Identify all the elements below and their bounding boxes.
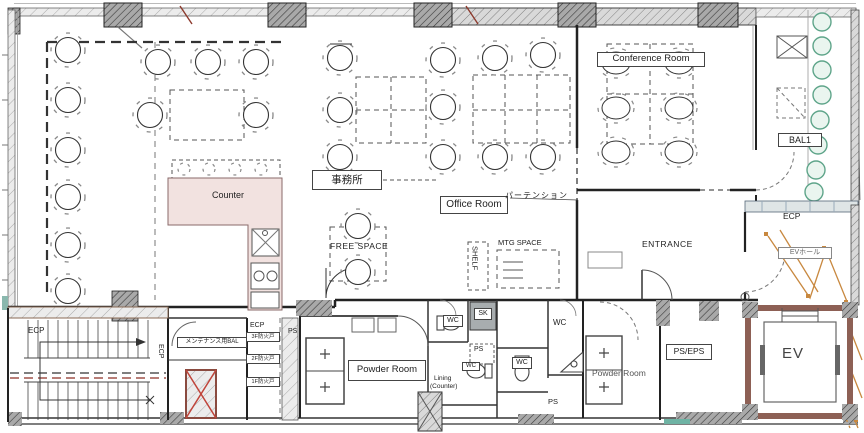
label-wc-1: WC xyxy=(443,315,463,327)
counter-area xyxy=(168,163,282,310)
room-label-powder-right: Powder Room xyxy=(592,369,646,379)
label-ps-wc: PS xyxy=(474,346,483,354)
label-wc-2: WC xyxy=(512,357,532,369)
outer-walls xyxy=(2,3,860,426)
label-ecp-stair: ECP xyxy=(28,326,44,335)
powder-room-left xyxy=(296,300,428,418)
label-shelf: SHELF xyxy=(470,246,479,270)
label-maintenance-bal: メンテナンス用BAL xyxy=(177,337,247,348)
office-tables xyxy=(51,33,560,308)
label-ps-eps: PS/EPS xyxy=(666,344,712,360)
label-fire-door-2f: 2F防火戸 xyxy=(246,354,280,364)
label-ecp-balcony: ECP xyxy=(783,212,800,222)
label-ps-core: PS xyxy=(288,328,297,336)
label-ps-bottom: PS xyxy=(548,398,558,407)
label-sk: SK xyxy=(474,308,492,320)
label-wc-4: WC xyxy=(462,362,480,371)
floor-plan-drawing xyxy=(0,0,864,433)
label-entrance: ENTRANCE xyxy=(642,240,693,250)
floor-plan: Conference Room BAL1 ECP EVホール Counter 事… xyxy=(0,0,864,433)
label-counter: Counter xyxy=(198,190,258,200)
room-label-conference: Conference Room xyxy=(597,52,705,67)
room-label-ev-hall: EVホール xyxy=(778,247,832,259)
label-wc-3: WC xyxy=(553,318,566,327)
label-ecp-stair-side: ECP xyxy=(156,344,164,358)
room-label-bal1: BAL1 xyxy=(778,133,822,147)
office-zone-lines xyxy=(47,42,570,300)
room-label-office-room: Office Room xyxy=(440,196,508,214)
powder-room-right xyxy=(583,300,638,418)
label-ecp-core: ECP xyxy=(250,322,264,330)
room-label-powder-left: Powder Room xyxy=(348,360,426,381)
label-lining-counter-1: Lining xyxy=(434,375,451,382)
staircase xyxy=(8,307,168,422)
label-lining-counter-2: (Counter) xyxy=(430,383,457,390)
room-label-office-jp: 事務所 xyxy=(312,170,382,190)
label-fire-door-3f: 3F防火戸 xyxy=(246,332,280,342)
label-free-space: FREE SPACE xyxy=(330,242,388,252)
balcony xyxy=(745,10,859,212)
label-partition: パーテンション xyxy=(505,191,568,200)
label-mtg-space: MTG SPACE xyxy=(498,239,542,248)
room-label-ev: EV xyxy=(782,345,804,362)
label-fire-door-1f: 1F防火戸 xyxy=(246,377,280,387)
